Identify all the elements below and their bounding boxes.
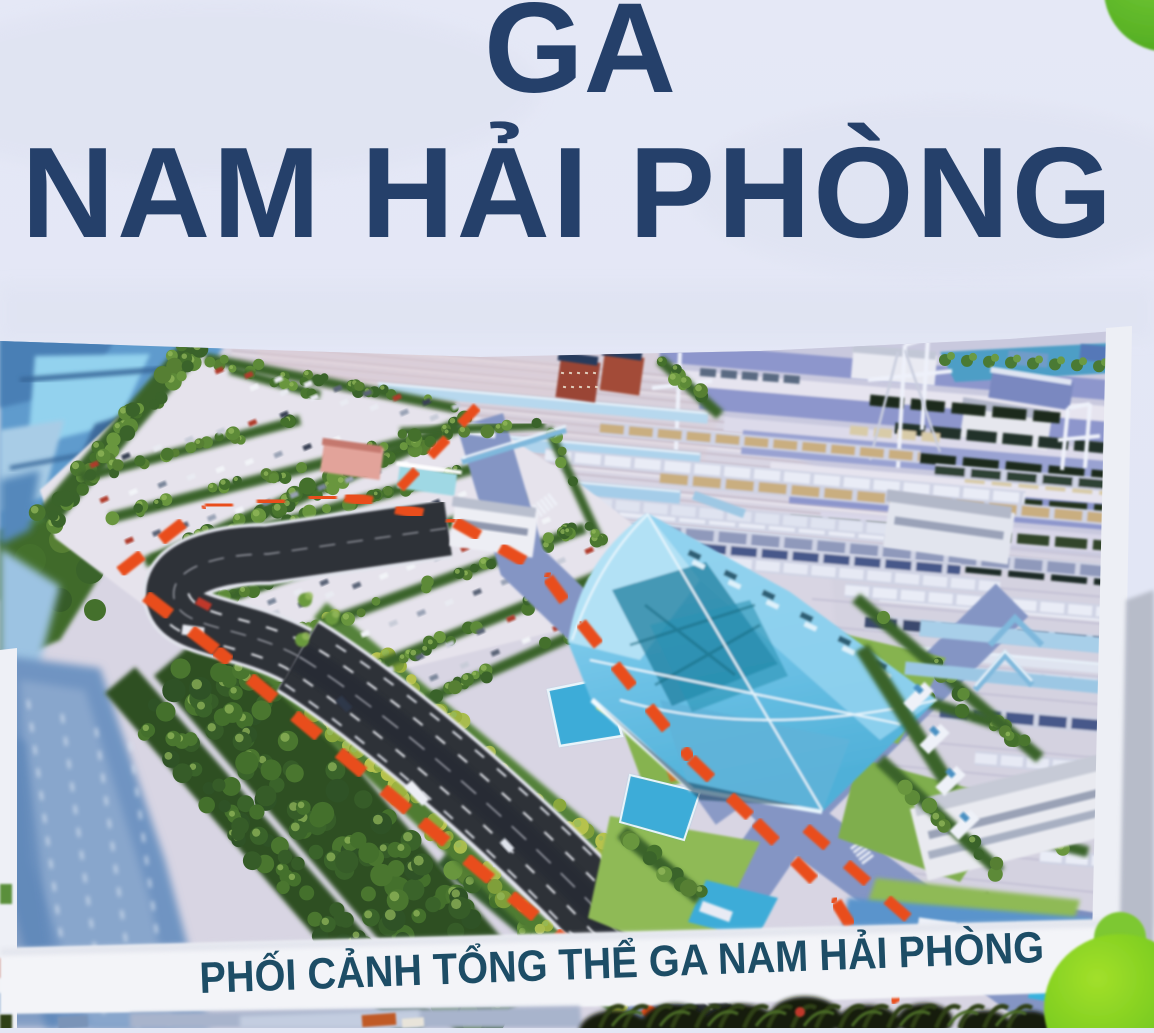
svg-text:NAM HẢI PHÒNG: NAM HẢI PHÒNG <box>21 120 1114 265</box>
svg-text:GA: GA <box>484 0 676 120</box>
